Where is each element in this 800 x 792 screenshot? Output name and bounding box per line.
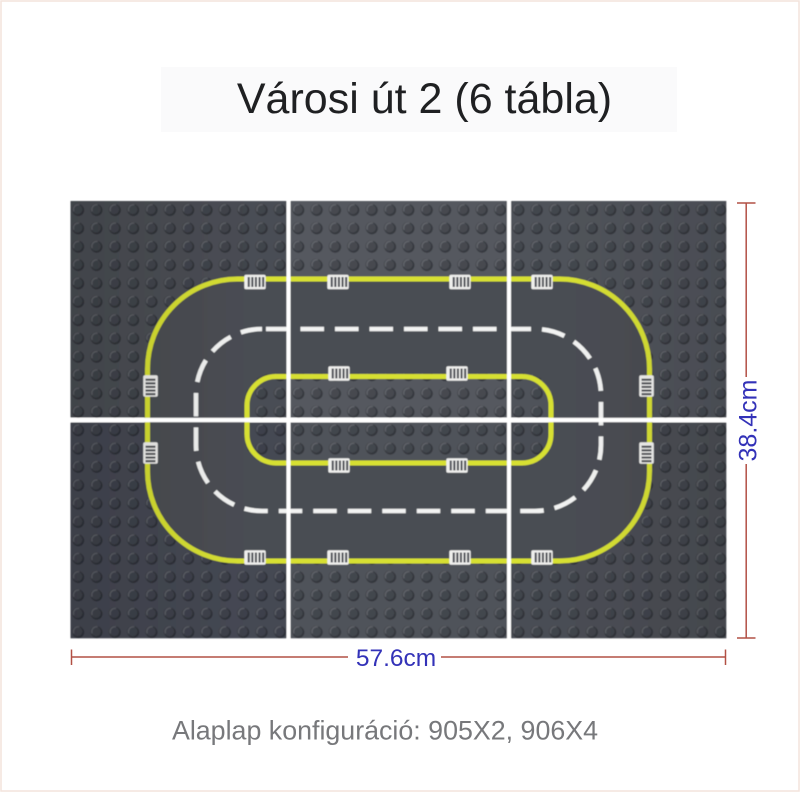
svg-text:Alaplap konfiguráció: 905X2, 9: Alaplap konfiguráció: 905X2, 906X4 xyxy=(172,716,598,746)
svg-text:57.6cm: 57.6cm xyxy=(356,645,436,672)
svg-text:38.4cm: 38.4cm xyxy=(735,380,763,462)
svg-text:Városi út 2 (6 tábla): Városi út 2 (6 tábla) xyxy=(237,75,612,123)
